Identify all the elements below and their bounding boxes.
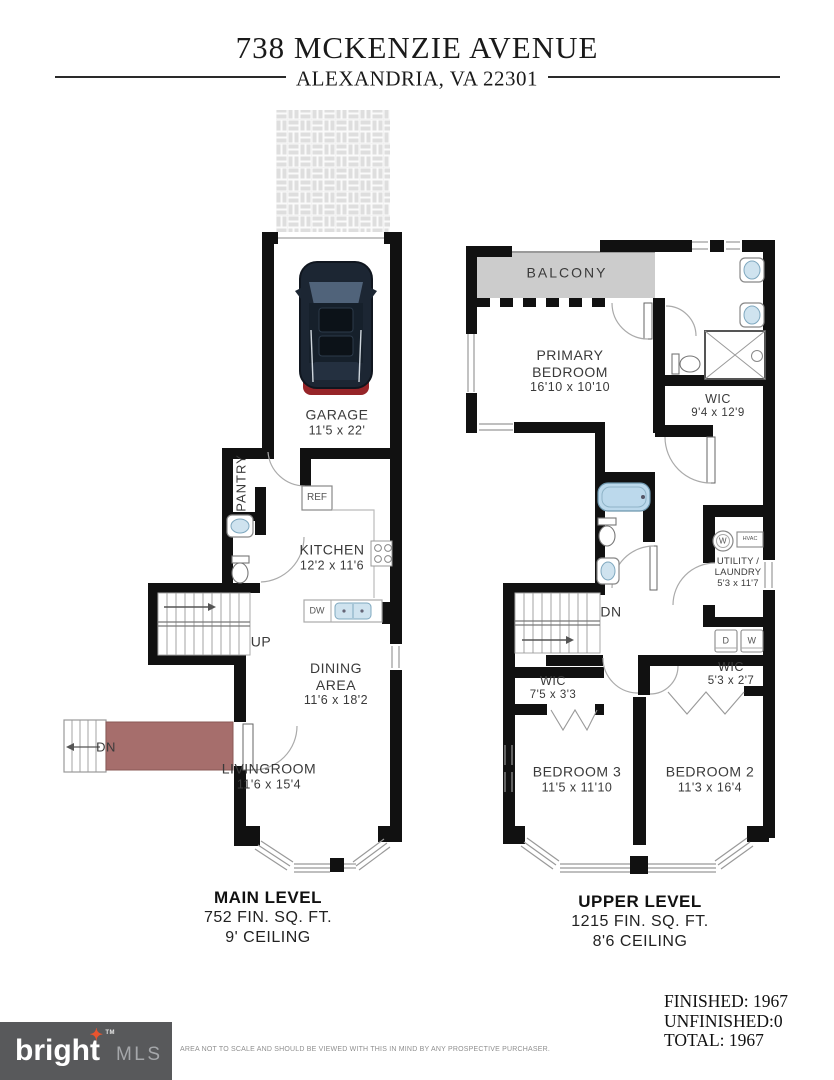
upper-level-caption: UPPER LEVEL 1215 FIN. SQ. FT. 8'6 CEILIN…	[571, 892, 708, 952]
logo-star-icon: ✦	[90, 1025, 103, 1045]
stairs-down-label-main: DN	[96, 739, 116, 754]
logo-tm-mark: TM	[105, 1030, 115, 1036]
dryer-label: D	[723, 636, 730, 647]
finished-total: FINISHED: 1967	[664, 992, 788, 1012]
room-label-balcony: BALCONY	[527, 265, 608, 282]
primary-bath-sinks	[740, 258, 764, 327]
stove	[371, 541, 392, 566]
room-label-dining: DINING AREA 11'6 x 18'2	[304, 660, 368, 708]
floorplan-graphics	[0, 0, 834, 1080]
driveway	[276, 110, 390, 232]
room-label-bedroom2: BEDROOM 2 11'3 x 16'4	[666, 763, 755, 794]
washer-label: W	[719, 536, 727, 545]
primary-toilet	[672, 354, 700, 374]
balcony-railing	[477, 298, 605, 307]
car-icon	[295, 262, 377, 395]
refrigerator-label: REF	[307, 492, 327, 504]
stairs-up	[158, 593, 250, 655]
disclaimer-text: AREA NOT TO SCALE AND SHOULD BE VIEWED W…	[180, 1046, 550, 1053]
floorplan-page: 738 MCKENZIE AVENUE ALEXANDRIA, VA 22301	[0, 0, 834, 1080]
room-label-wic-bedroom3: WIC 7'5 x 3'3	[530, 674, 577, 702]
washer2-label: W	[748, 636, 757, 647]
hvac-label: HVAC	[743, 536, 758, 542]
room-label-pantry: PANTRY	[233, 454, 248, 512]
stairs-down	[515, 593, 600, 653]
room-label-wic-primary: WIC 9'4 x 12'9	[691, 392, 745, 420]
powder-sink	[227, 515, 253, 537]
overall-total: TOTAL: 1967	[664, 1031, 788, 1051]
unfinished-total: UNFINISHED:0	[664, 1012, 788, 1032]
porch-steps	[64, 720, 233, 772]
hall-sink	[597, 558, 619, 584]
bright-mls-logo: bright ✦ TM MLS	[0, 1022, 172, 1080]
dishwasher-label: DW	[310, 606, 325, 617]
room-label-wic-hall: WIC 5'3 x 2'7	[708, 660, 755, 688]
room-label-garage: GARAGE 11'5 x 22'	[306, 406, 369, 437]
shower	[705, 331, 765, 379]
logo-mls-text: MLS	[116, 1044, 163, 1066]
room-label-kitchen: KITCHEN 12'2 x 11'6	[300, 541, 365, 572]
square-footage-totals: FINISHED: 1967 UNFINISHED:0 TOTAL: 1967	[664, 992, 788, 1051]
room-label-living: LIVINGROOM 11'6 x 15'4	[222, 760, 316, 791]
main-level-caption: MAIN LEVEL 752 FIN. SQ. FT. 9' CEILING	[204, 888, 332, 948]
logo-brand-text: bright ✦ TM	[15, 1034, 100, 1068]
room-label-primary-bedroom: PRIMARY BEDROOM 16'10 x 10'10	[530, 347, 610, 395]
stairs-down-label-upper: DN	[600, 604, 621, 621]
bathtub	[598, 483, 650, 511]
hall-toilet	[598, 518, 616, 546]
powder-toilet	[232, 556, 249, 583]
stairs-up-label: UP	[251, 634, 271, 651]
room-label-bedroom3: BEDROOM 3 11'5 x 11'10	[533, 763, 622, 794]
room-label-utility: UTILITY / LAUNDRY 5'3 x 11'7	[715, 556, 762, 590]
